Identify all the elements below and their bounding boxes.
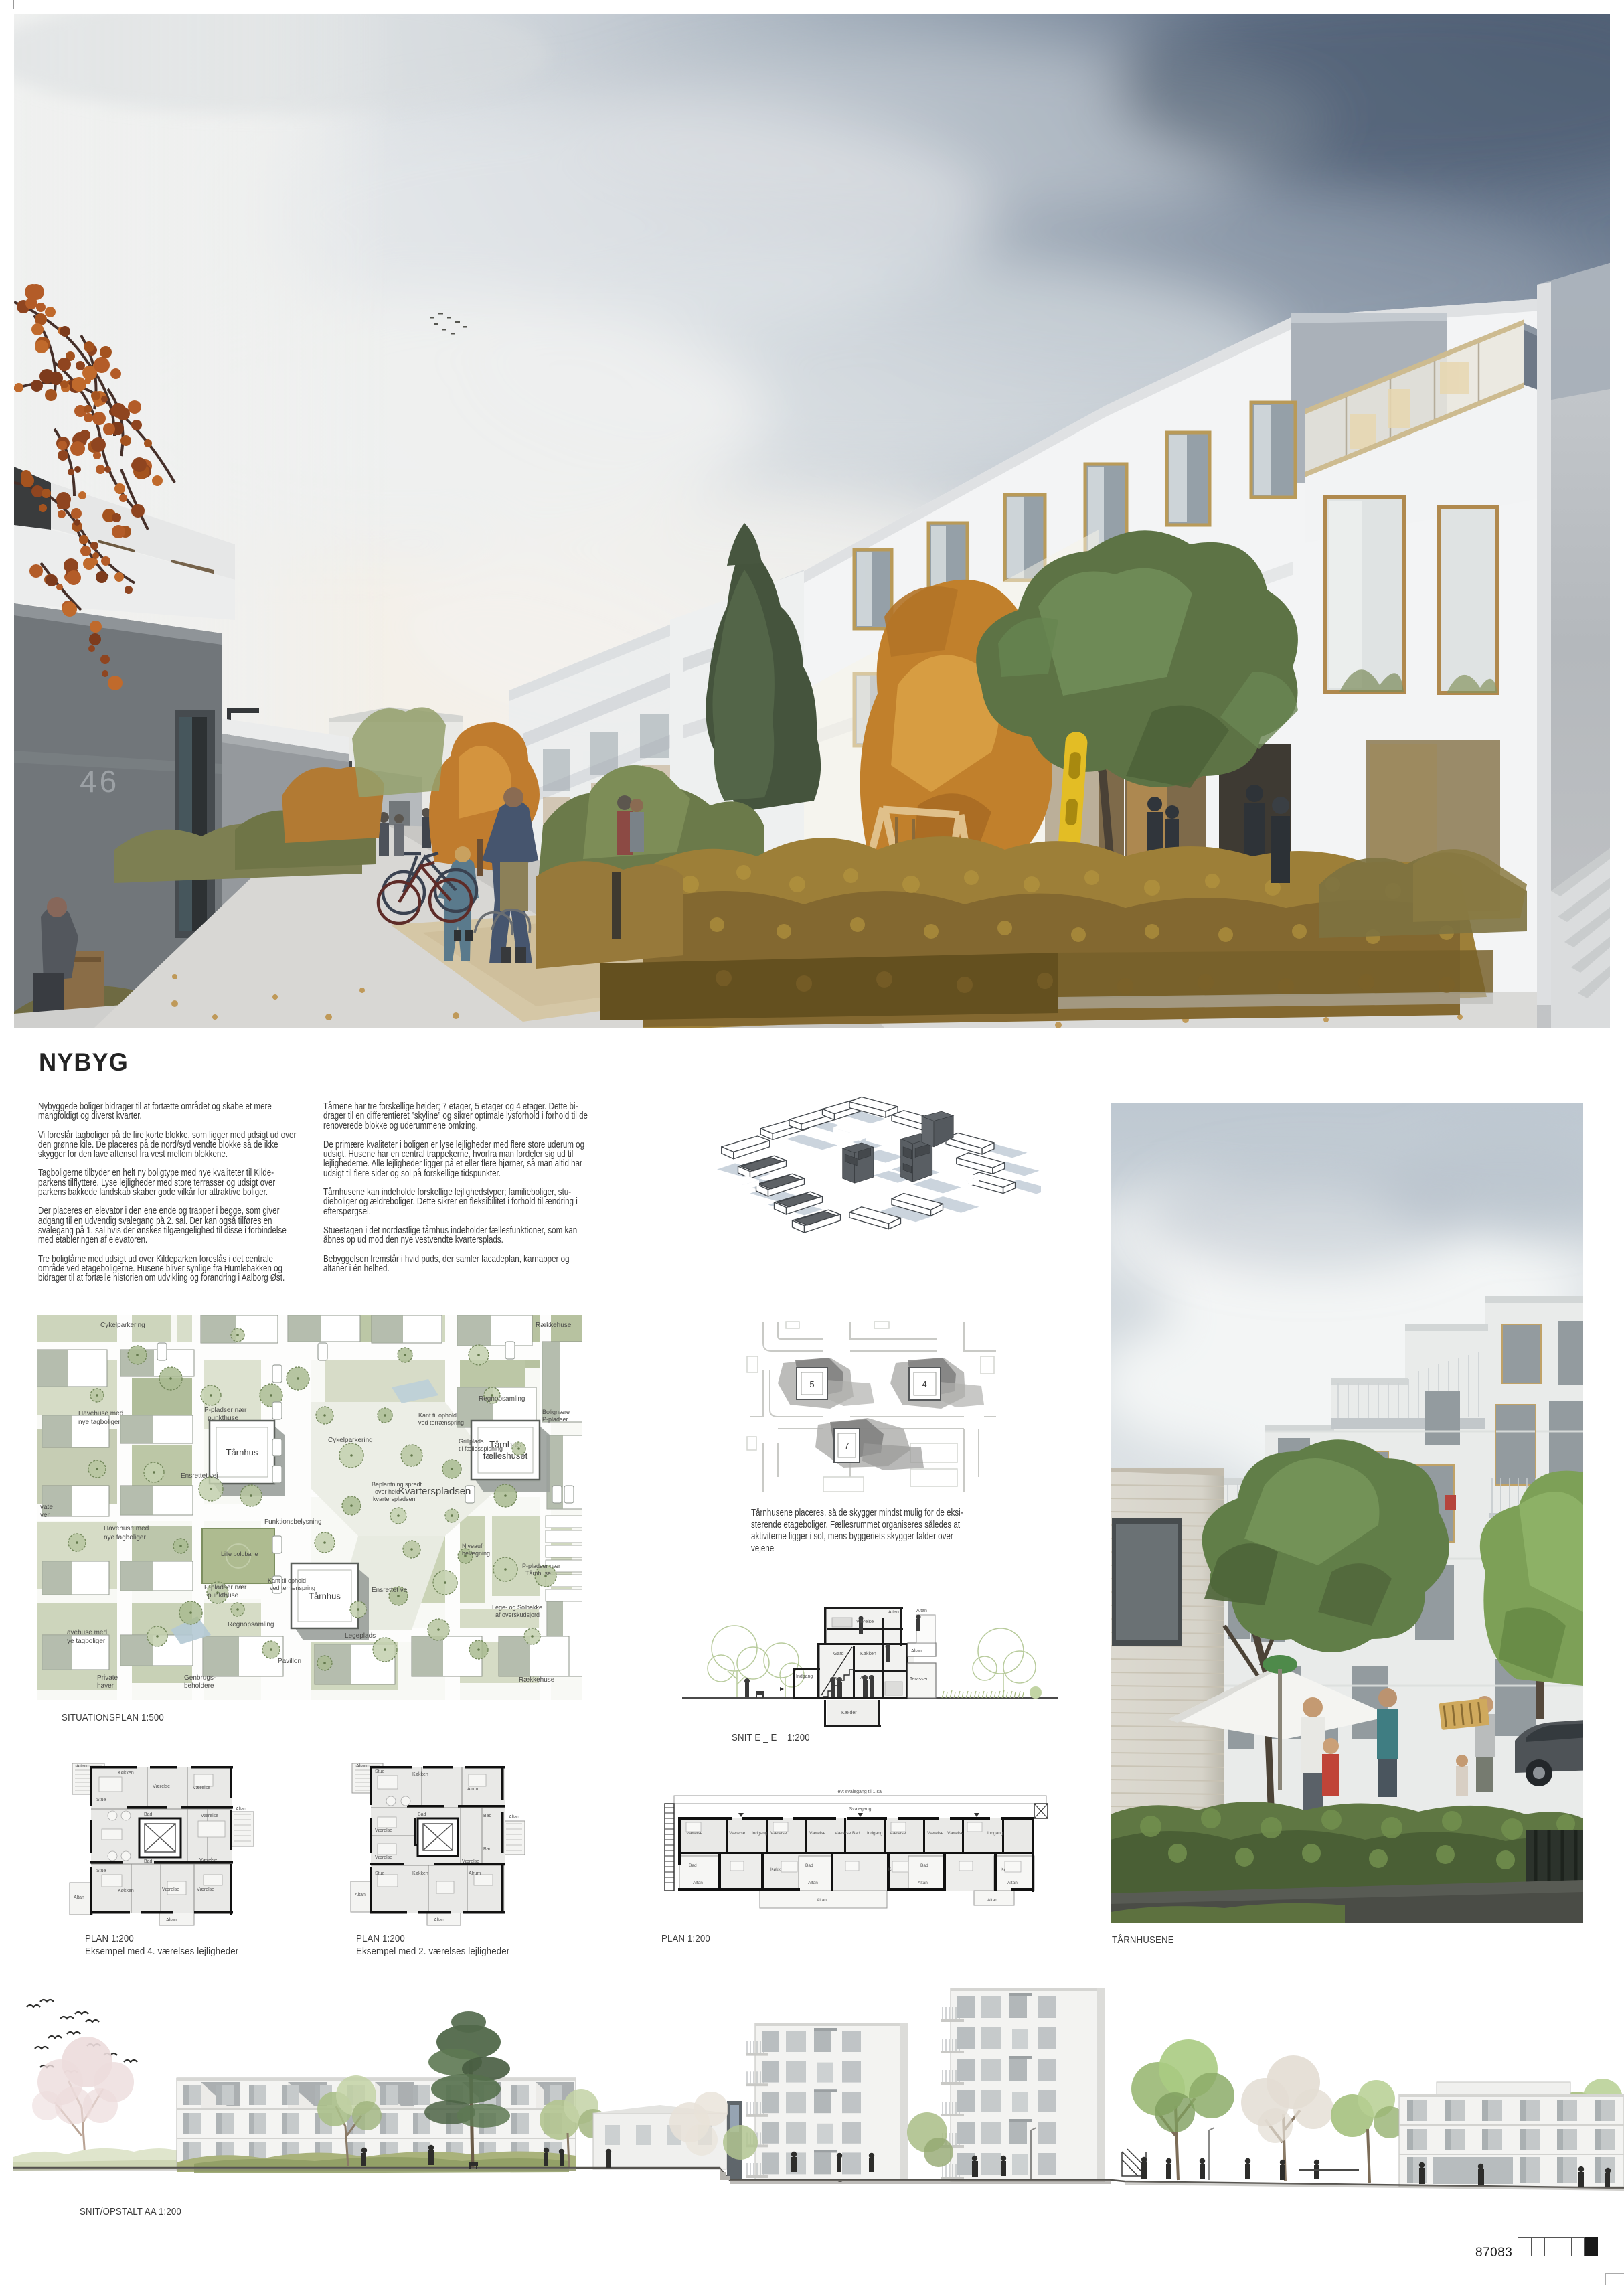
svg-text:Ensrettet vej: Ensrettet vej <box>372 1587 409 1594</box>
svg-text:ver: ver <box>40 1512 50 1519</box>
svg-text:Bad: Bad <box>805 1863 813 1868</box>
svg-text:Regnopsamling: Regnopsamling <box>228 1621 274 1628</box>
svg-text:Altan: Altan <box>509 1815 519 1820</box>
svg-text:Beplantning spredt: Beplantning spredt <box>372 1481 422 1488</box>
svg-text:Bolignære: Bolignære <box>542 1409 570 1415</box>
svg-text:nye tagboliger: nye tagboliger <box>104 1534 146 1541</box>
svg-text:avehuse med: avehuse med <box>67 1629 107 1636</box>
svg-text:kvarterspladsen: kvarterspladsen <box>373 1496 416 1502</box>
svg-text:vate: vate <box>40 1504 53 1511</box>
svg-text:Tårnhuse: Tårnhuse <box>525 1570 551 1577</box>
svg-text:Private: Private <box>97 1674 118 1682</box>
svg-text:Altan: Altan <box>356 1764 367 1769</box>
svg-text:46: 46 <box>80 764 119 799</box>
svg-text:Bad: Bad <box>483 1847 492 1852</box>
svg-text:Alrum: Alrum <box>467 1787 479 1792</box>
svg-text:Altan: Altan <box>166 1918 177 1923</box>
svg-text:Legeplads: Legeplads <box>345 1632 376 1640</box>
svg-text:Rækkehuse: Rækkehuse <box>519 1676 555 1684</box>
svg-text:Værelse: Værelse <box>162 1887 179 1892</box>
svg-text:Indgang: Indgang <box>867 1831 883 1836</box>
svg-text:5: 5 <box>809 1379 814 1389</box>
svg-text:Genbrugs-: Genbrugs- <box>184 1674 216 1682</box>
svg-text:Pavillon: Pavillon <box>278 1658 301 1665</box>
svg-text:Stue: Stue <box>96 1869 106 1873</box>
svg-text:Altan: Altan <box>355 1893 366 1897</box>
svg-text:til fællesspisning: til fællesspisning <box>459 1445 503 1452</box>
svg-text:Ensrettet vej: Ensrettet vej <box>181 1472 218 1480</box>
svg-text:Alrum: Alrum <box>469 1871 481 1876</box>
svg-text:Funktionsbelysning: Funktionsbelysning <box>264 1518 322 1526</box>
svg-text:over hele: over hele <box>375 1488 400 1495</box>
svg-text:Køkken: Køkken <box>412 1871 428 1876</box>
svg-text:Altan: Altan <box>1007 1881 1018 1885</box>
svg-text:Alrum: Alrum <box>860 1676 872 1680</box>
svg-text:beholdere: beholdere <box>184 1682 214 1690</box>
svg-text:Værelse: Værelse <box>927 1831 944 1836</box>
svg-text:Bad: Bad <box>144 1812 153 1817</box>
svg-text:Kant til ophold: Kant til ophold <box>418 1412 457 1419</box>
svg-text:Gard: Gard <box>833 1677 844 1682</box>
svg-text:Stue: Stue <box>375 1769 385 1774</box>
svg-text:evt svalegang til 1.sal: evt svalegang til 1.sal <box>838 1790 883 1794</box>
svg-text:Stue: Stue <box>96 1798 106 1802</box>
svg-text:Værelse: Værelse <box>856 1620 874 1624</box>
svg-text:Tårnhus: Tårnhus <box>226 1447 258 1457</box>
svg-text:Altan: Altan <box>817 1898 827 1903</box>
svg-text:haver: haver <box>97 1682 114 1690</box>
svg-text:Bad: Bad <box>144 1859 153 1864</box>
svg-text:Indgang: Indgang <box>987 1831 1003 1836</box>
svg-text:Værelse: Værelse <box>375 1828 392 1833</box>
svg-text:Kælder: Kælder <box>841 1711 857 1715</box>
svg-text:af overskudsjord: af overskudsjord <box>495 1611 540 1618</box>
svg-text:Værelse: Værelse <box>375 1855 392 1860</box>
svg-text:Værelse: Værelse <box>462 1859 479 1864</box>
svg-text:Grillplads: Grillplads <box>459 1438 484 1445</box>
svg-text:Gard: Gard <box>833 1652 844 1656</box>
svg-text:4: 4 <box>922 1379 926 1389</box>
svg-text:Køkken: Køkken <box>118 1771 134 1776</box>
svg-text:Altan: Altan <box>888 1610 899 1615</box>
svg-text:Værelse: Værelse <box>809 1831 826 1836</box>
svg-text:P-pladser nær: P-pladser nær <box>522 1563 560 1569</box>
svg-text:ye tagboliger: ye tagboliger <box>67 1638 106 1645</box>
svg-text:7: 7 <box>844 1441 849 1451</box>
svg-text:Værelse: Værelse <box>947 1831 964 1836</box>
svg-text:Altan: Altan <box>236 1807 246 1812</box>
svg-text:Altan: Altan <box>76 1764 87 1769</box>
svg-text:Altan: Altan <box>987 1898 997 1903</box>
svg-text:Værelse: Værelse <box>193 1786 210 1790</box>
svg-text:Bad: Bad <box>689 1863 697 1868</box>
svg-text:Indgang: Indgang <box>752 1831 768 1836</box>
svg-text:ved terrænspring: ved terrænspring <box>270 1585 315 1591</box>
svg-text:P-pladser nær: P-pladser nær <box>204 1407 247 1414</box>
svg-text:Altan: Altan <box>808 1881 818 1885</box>
svg-text:Køkken: Køkken <box>118 1889 134 1893</box>
svg-text:Bad: Bad <box>418 1812 426 1817</box>
svg-text:Niveaufri: Niveaufri <box>462 1543 486 1549</box>
svg-text:Altan: Altan <box>916 1609 927 1613</box>
svg-text:Køkken: Køkken <box>860 1652 876 1656</box>
svg-text:Værelse: Værelse <box>729 1831 746 1836</box>
svg-text:Altan: Altan <box>74 1895 84 1900</box>
svg-text:Værelse: Værelse <box>199 1858 217 1863</box>
svg-text:nye tagboliger: nye tagboliger <box>78 1419 120 1426</box>
svg-text:P-pladser nær: P-pladser nær <box>204 1584 247 1591</box>
svg-text:Terassen: Terassen <box>910 1677 929 1682</box>
svg-text:Altan: Altan <box>693 1881 703 1885</box>
svg-text:Havehuse med: Havehuse med <box>78 1410 123 1417</box>
svg-text:Lille boldbane: Lille boldbane <box>221 1551 258 1557</box>
svg-text:Værelse: Værelse <box>153 1784 170 1789</box>
svg-text:Indgang: Indgang <box>796 1674 813 1679</box>
svg-text:Bad: Bad <box>920 1863 928 1868</box>
svg-text:Bad: Bad <box>483 1814 492 1818</box>
svg-text:ved terrænspring: ved terrænspring <box>418 1419 464 1426</box>
svg-text:Altan: Altan <box>434 1918 444 1923</box>
svg-text:Regnopsamling: Regnopsamling <box>479 1395 525 1403</box>
svg-text:Kant til ophold: Kant til ophold <box>268 1577 306 1584</box>
svg-text:Værelse: Værelse <box>197 1887 214 1892</box>
svg-text:Bad: Bad <box>852 1831 860 1836</box>
svg-text:Havehuse med: Havehuse med <box>104 1525 149 1532</box>
svg-text:Køkken: Køkken <box>412 1772 428 1777</box>
svg-text:Altan: Altan <box>911 1649 922 1654</box>
svg-text:Cykelparkering: Cykelparkering <box>100 1322 145 1329</box>
svg-text:Lege- og Solbakke: Lege- og Solbakke <box>492 1604 542 1611</box>
svg-text:punkthuse: punkthuse <box>208 1592 239 1599</box>
svg-text:Svalegang: Svalegang <box>849 1807 871 1812</box>
svg-text:Altan: Altan <box>918 1881 928 1885</box>
svg-text:Tårnhus: Tårnhus <box>309 1591 341 1601</box>
svg-text:Stue: Stue <box>375 1871 385 1876</box>
svg-text:Værelse: Værelse <box>201 1814 218 1818</box>
svg-text:punkthuse: punkthuse <box>208 1415 239 1422</box>
svg-text:Værelse: Værelse <box>835 1831 851 1836</box>
svg-text:P-pladser: P-pladser <box>542 1416 568 1423</box>
svg-text:belægning: belægning <box>462 1550 490 1557</box>
svg-text:Rækkehuse: Rækkehuse <box>536 1322 572 1329</box>
svg-text:Cykelparkering: Cykelparkering <box>328 1437 373 1444</box>
